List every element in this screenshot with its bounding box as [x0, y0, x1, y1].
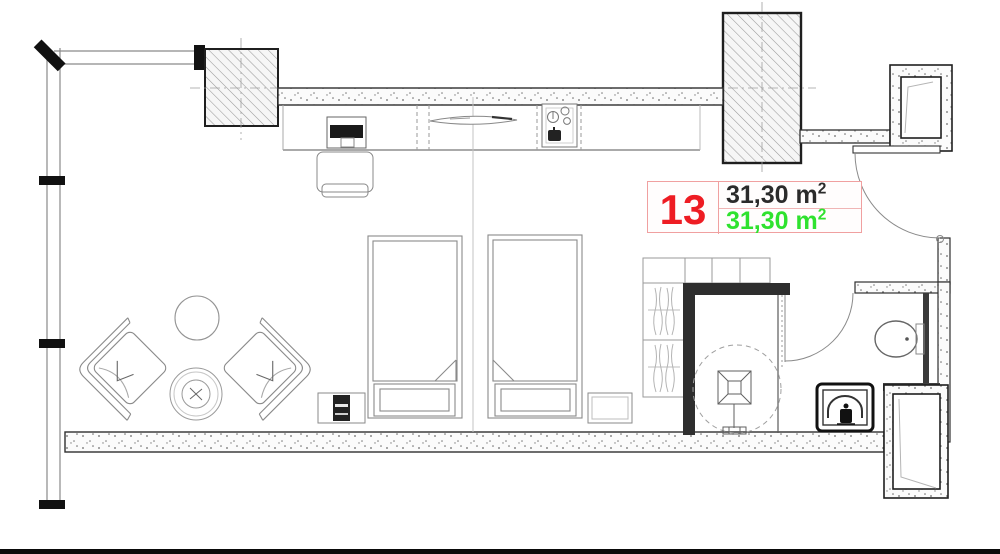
armchair-right: [211, 318, 314, 421]
top-wall: [278, 88, 723, 105]
shower-head: [718, 371, 751, 434]
corner-mullion-icon: [34, 39, 66, 71]
service-shaft-bottom: [884, 385, 948, 498]
armchair-left: [76, 318, 179, 421]
bed-2: [488, 235, 582, 418]
entry-door: [853, 146, 944, 243]
unit-number: 13: [648, 182, 719, 234]
nightstand-right: [588, 393, 632, 423]
shower-enclosure: [683, 283, 790, 435]
tv: [327, 117, 366, 148]
washbasin: [817, 384, 873, 431]
service-shaft-top: [890, 65, 952, 151]
shower-area-circle: [693, 345, 781, 433]
toilet: [875, 321, 924, 357]
right-wall-upper: [938, 238, 950, 284]
column-large: [708, 2, 816, 175]
overhead-cabinets: [643, 258, 770, 283]
bottom-wall: [65, 432, 884, 452]
bathroom-door-swing: [785, 293, 853, 362]
floor-plan: 13 31,30 m2 31,30 m2: [0, 0, 1000, 554]
window-top: [54, 51, 196, 64]
right-top-wall-strip: [800, 130, 890, 143]
bed-1: [368, 236, 462, 418]
unit-net-area: 31,30 m2: [719, 209, 861, 234]
toilet-room-top-wall: [855, 282, 950, 293]
bottom-edge-bar: [0, 549, 1000, 554]
coffee-table: [170, 368, 222, 420]
nightstand-left: [318, 393, 365, 423]
faucet-icon: [844, 404, 849, 409]
window-left: [47, 48, 60, 505]
minibar: [333, 395, 350, 421]
kitchenette: [542, 104, 577, 147]
wardrobe: [643, 258, 685, 397]
ceiling-fan: [430, 97, 517, 432]
tv-cabinet: [317, 152, 373, 197]
plan-drawing: [0, 0, 1000, 554]
unit-gross-area: 31,30 m2: [719, 182, 861, 209]
unit-label-table: 13 31,30 m2 31,30 m2: [647, 181, 862, 233]
plant: [175, 296, 219, 340]
